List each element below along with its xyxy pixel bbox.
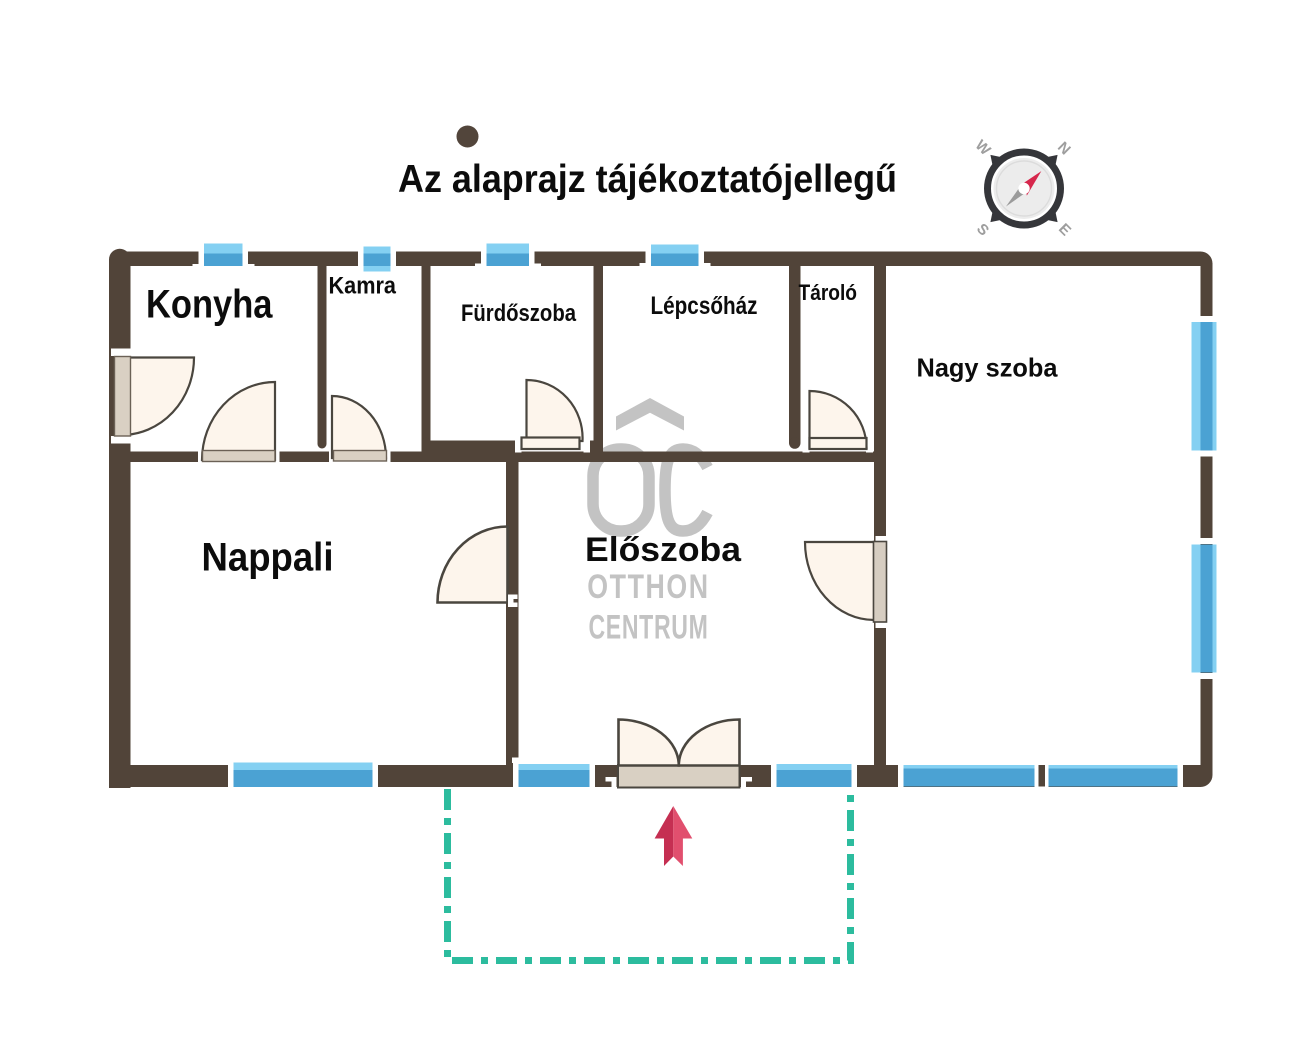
svg-text:OTTHON: OTTHON [587,567,709,606]
svg-text:Konyha: Konyha [146,283,273,327]
svg-text:Tároló: Tároló [799,280,858,305]
svg-text:Fürdőszoba: Fürdőszoba [461,300,577,327]
svg-text:E: E [1055,220,1074,239]
svg-text:Az alaprajz tájékoztatójellegű: Az alaprajz tájékoztatójellegű [398,158,897,201]
svg-text:S: S [973,220,992,239]
svg-text:Nagy szoba: Nagy szoba [917,353,1059,383]
svg-text:Lépcsőház: Lépcsőház [651,292,758,320]
svg-text:Előszoba: Előszoba [585,531,742,569]
svg-text:Nappali: Nappali [202,536,334,580]
svg-text:Kamra: Kamra [329,273,397,300]
svg-text:CENTRUM: CENTRUM [588,608,708,647]
